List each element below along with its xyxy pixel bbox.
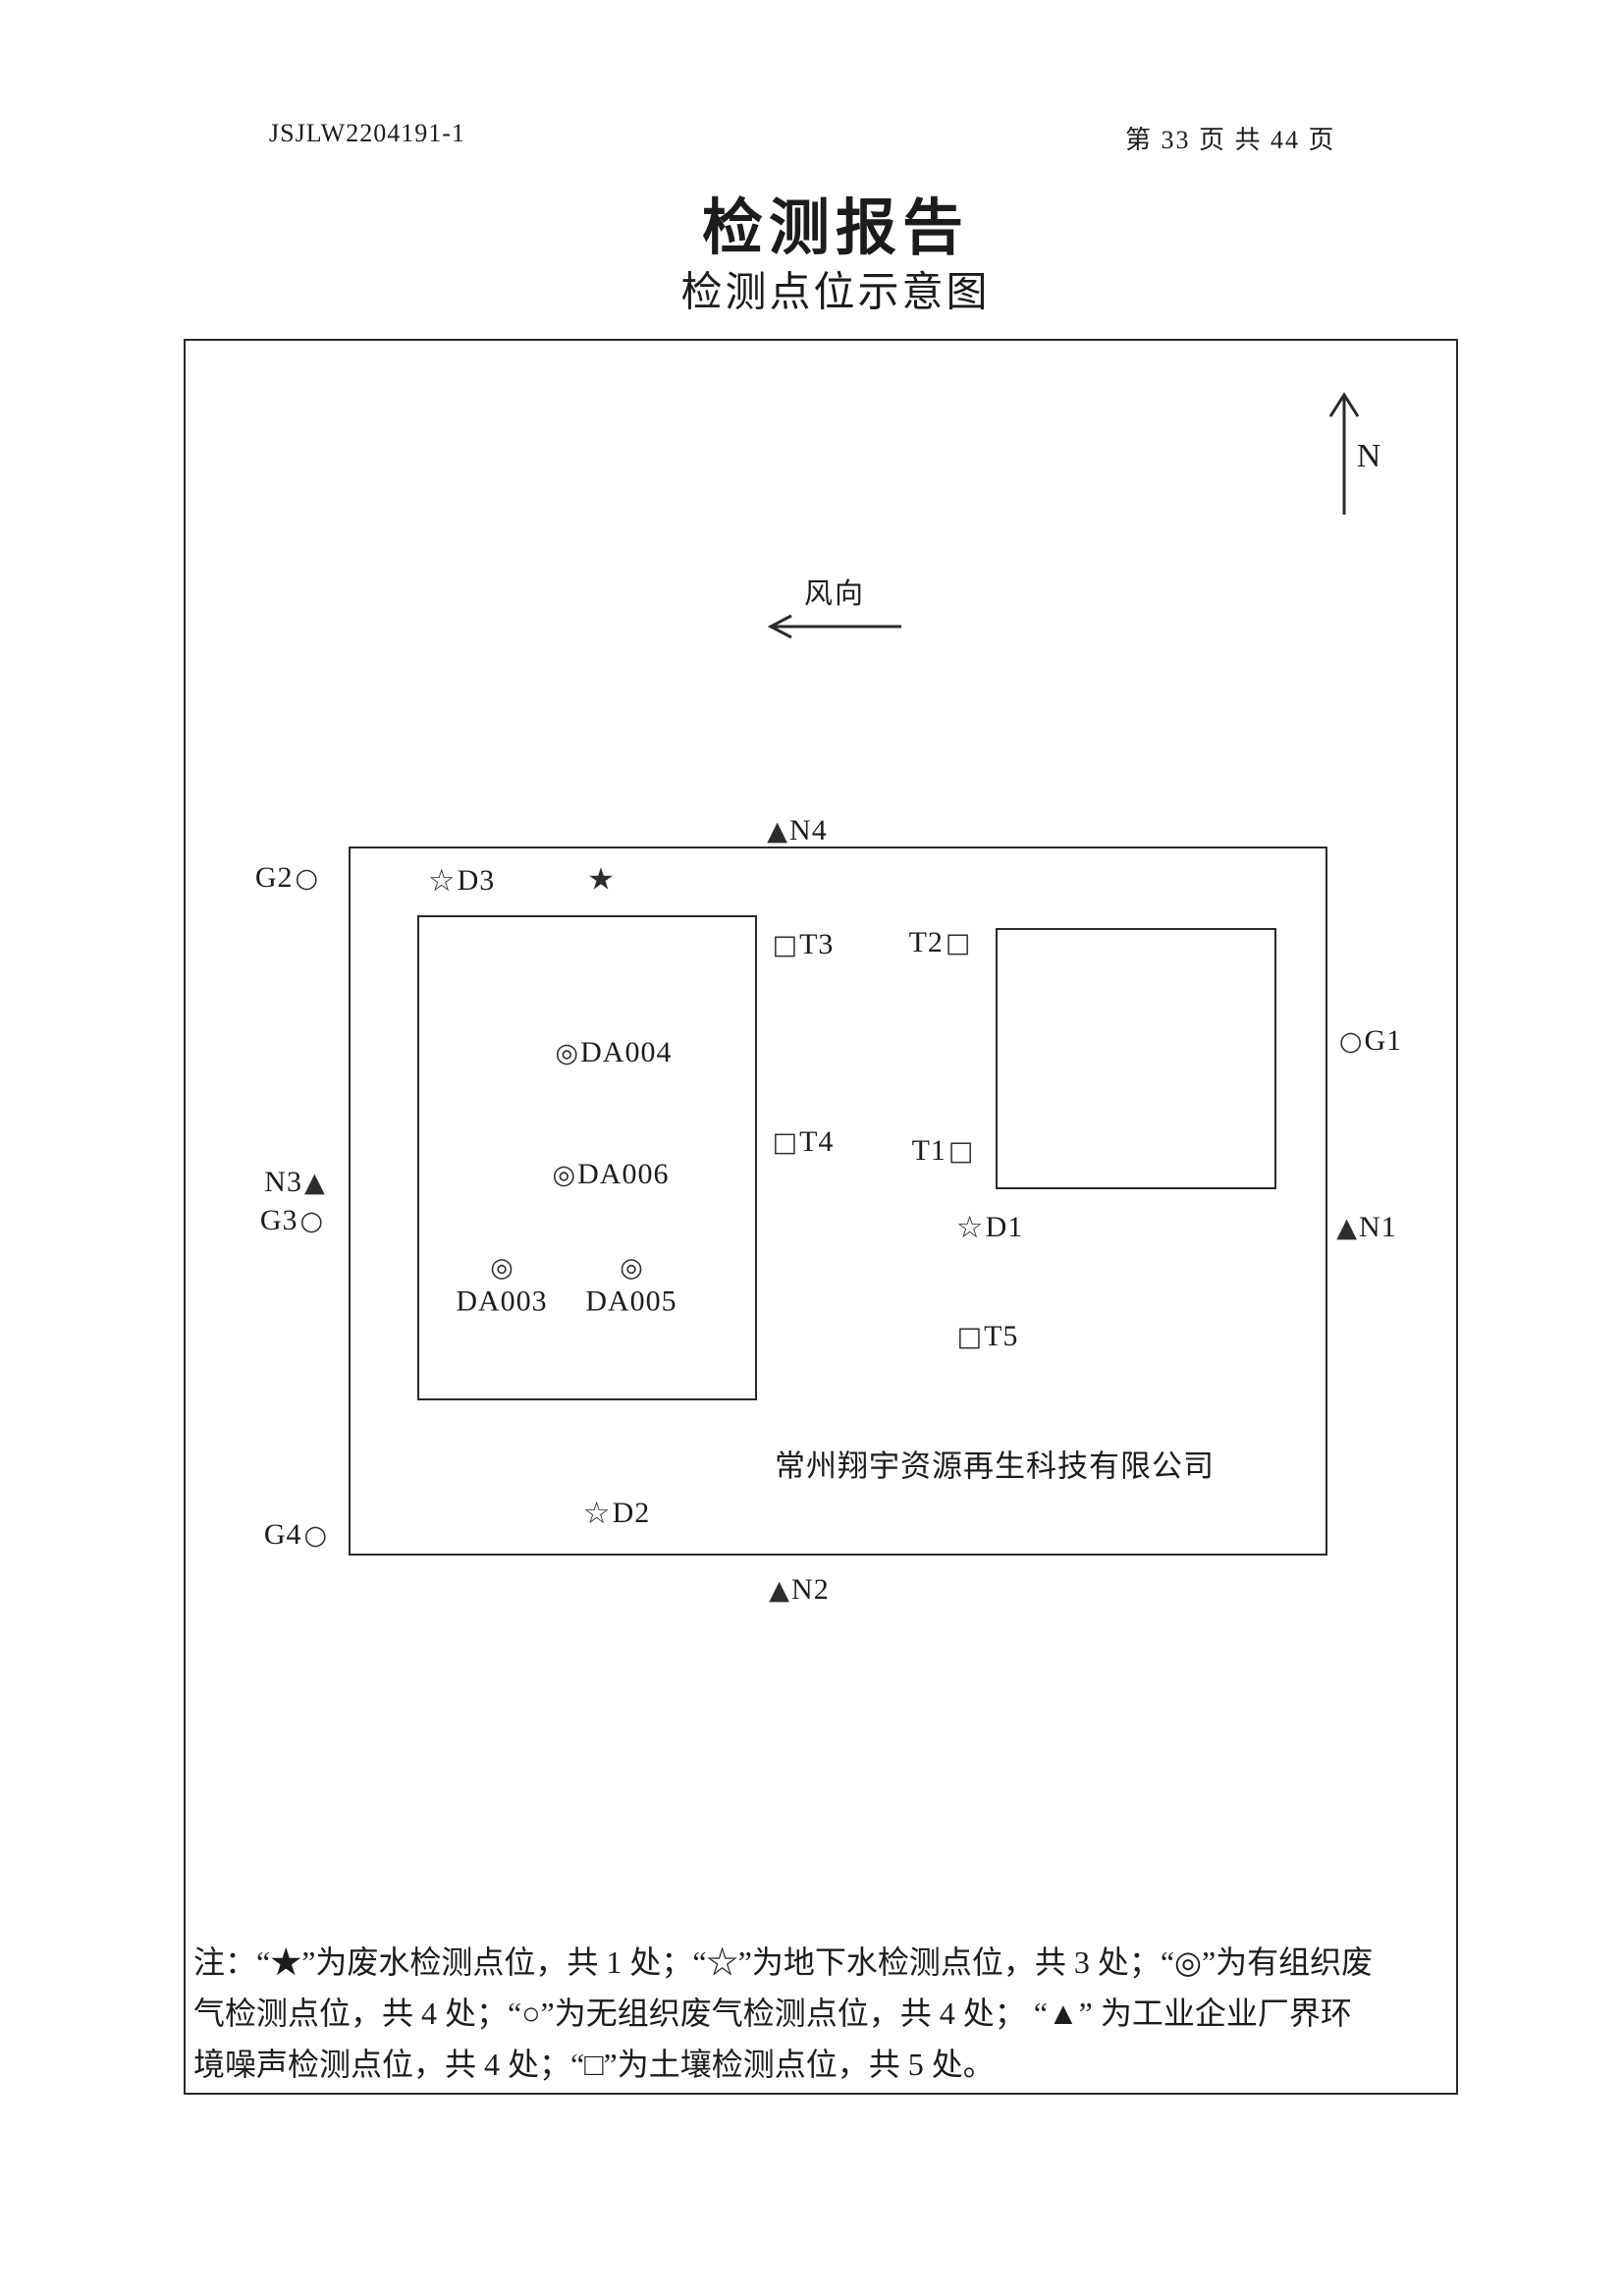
organized-gas-double-circle-icon: ◎: [556, 1040, 579, 1066]
noise-triangle-icon: ▲: [767, 818, 787, 845]
point-label: DA004: [580, 1036, 672, 1069]
wastewater-star-icon: ★: [587, 865, 615, 896]
soil-square-icon: □: [773, 1129, 798, 1156]
groundwater-star-icon: ☆: [583, 1499, 611, 1529]
point-G3: G3○: [260, 1204, 323, 1237]
unorganized-gas-circle-icon: ○: [1339, 1028, 1363, 1055]
legend-note-line: 境噪声检测点位，共 4 处；“□”为土壤检测点位，共 5 处。: [193, 2039, 1456, 2090]
point-T2: T2□: [909, 926, 971, 959]
point-label: N2: [791, 1573, 830, 1607]
point-label: T3: [799, 928, 834, 961]
point-N3: N3▲: [264, 1166, 324, 1199]
point-label: D1: [986, 1211, 1024, 1244]
point-DA005: ◎DA005: [585, 1255, 676, 1319]
point-label: D3: [458, 864, 496, 898]
point-label: N1: [1359, 1211, 1397, 1244]
page-indicator: 第 33 页 共 44 页: [1125, 120, 1336, 156]
point-N4: ▲N4: [767, 814, 827, 847]
point-G2: G2○: [255, 861, 318, 895]
groundwater-star-icon: ☆: [428, 866, 456, 897]
point-label: G3: [260, 1204, 298, 1237]
groundwater-star-icon: ☆: [956, 1213, 984, 1243]
point-DA003: ◎DA003: [456, 1255, 547, 1319]
point-T5: □T5: [957, 1320, 1019, 1353]
wind-arrow-icon: [766, 613, 905, 640]
point-N2: ▲N2: [769, 1573, 829, 1607]
point-label: N3: [264, 1166, 302, 1199]
point-T4: □T4: [773, 1125, 835, 1159]
building-east: [996, 928, 1276, 1189]
organized-gas-double-circle-icon: ◎: [490, 1255, 514, 1282]
point-label: G2: [255, 861, 294, 895]
page-title: 检测报告: [702, 178, 969, 266]
point-D1: ☆D1: [956, 1211, 1023, 1244]
point-label: DA005: [585, 1285, 676, 1319]
organized-gas-double-circle-icon: ◎: [553, 1162, 576, 1188]
point-T1: T1□: [912, 1134, 974, 1168]
point-label: N4: [789, 814, 828, 847]
point-label: T4: [799, 1125, 834, 1159]
report-number: JSJLW2204191-1: [269, 119, 465, 148]
point-N1: ▲N1: [1336, 1211, 1396, 1244]
point-label: T5: [984, 1320, 1018, 1353]
north-label: N: [1357, 438, 1381, 475]
point-D2: ☆D2: [583, 1497, 650, 1530]
page-subtitle: 检测点位示意图: [680, 259, 990, 319]
unorganized-gas-circle-icon: ○: [300, 1208, 324, 1234]
document-page: JSJLW2204191-1 第 33 页 共 44 页 检测报告 检测点位示意…: [0, 0, 1623, 2296]
noise-triangle-icon: ▲: [304, 1170, 325, 1196]
point-label: T1: [912, 1134, 947, 1168]
legend-note: 注：“★”为废水检测点位，共 1 处；“☆”为地下水检测点位，共 3 处；“◎”…: [193, 1937, 1456, 2090]
point-label: DA003: [456, 1285, 547, 1319]
point-T3: □T3: [773, 928, 835, 961]
unorganized-gas-circle-icon: ○: [304, 1522, 328, 1549]
unorganized-gas-circle-icon: ○: [296, 865, 319, 892]
point-label: G4: [264, 1518, 302, 1552]
company-name: 常州翔宇资源再生科技有限公司: [775, 1442, 1215, 1486]
soil-square-icon: □: [957, 1324, 983, 1350]
point-label: T2: [909, 926, 944, 959]
legend-note-line: 注：“★”为废水检测点位，共 1 处；“☆”为地下水检测点位，共 3 处；“◎”…: [193, 1937, 1456, 1988]
point-DA004: ◎DA004: [556, 1036, 673, 1069]
point-label: DA006: [577, 1158, 669, 1191]
point-WW1: ★: [587, 865, 615, 896]
wind-direction-label: 风向: [804, 571, 865, 612]
noise-triangle-icon: ▲: [769, 1577, 789, 1604]
soil-square-icon: □: [948, 1138, 974, 1165]
point-label: D2: [613, 1497, 651, 1530]
soil-square-icon: □: [773, 932, 798, 958]
point-G4: G4○: [264, 1518, 327, 1552]
point-label: G1: [1364, 1024, 1402, 1058]
organized-gas-double-circle-icon: ◎: [620, 1255, 643, 1282]
point-DA006: ◎DA006: [553, 1158, 670, 1191]
point-G1: ○G1: [1339, 1024, 1402, 1058]
noise-triangle-icon: ▲: [1336, 1215, 1357, 1241]
legend-note-line: 气检测点位，共 4 处；“○”为无组织废气检测点位，共 4 处； “▲” 为工业…: [193, 1988, 1456, 2039]
point-D3: ☆D3: [428, 864, 495, 898]
soil-square-icon: □: [946, 930, 971, 957]
